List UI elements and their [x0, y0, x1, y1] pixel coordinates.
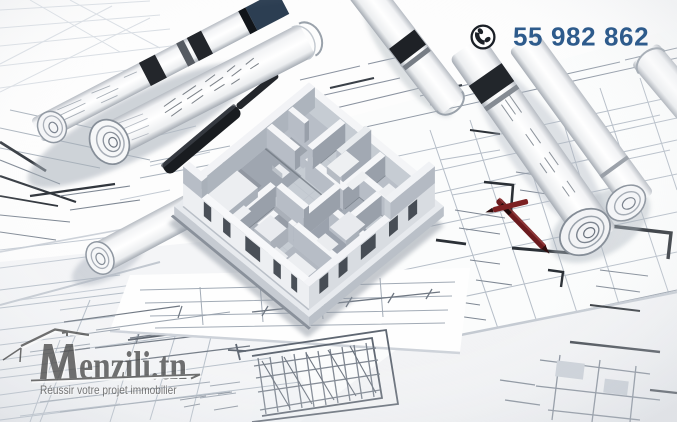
svg-text:enzili.tn: enzili.tn: [79, 343, 187, 387]
svg-text:55 982 862: 55 982 862: [513, 22, 649, 52]
svg-text:Réussir votre projet immobilie: Réussir votre projet immobilier: [40, 384, 177, 397]
